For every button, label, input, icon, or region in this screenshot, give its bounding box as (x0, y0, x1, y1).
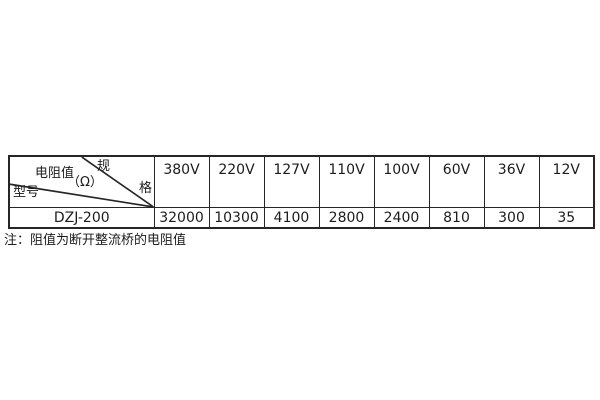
header-cell-12v: 12V (539, 156, 594, 208)
header-cell-60v: 60V (429, 156, 484, 208)
value-cell: 810 (429, 208, 484, 229)
corner-label-spec-char2: 格 (139, 182, 152, 195)
corner-label-model: 型号 (13, 186, 39, 199)
spec-table: 规 格 电阻值 （Ω） 型号 380V 220V 127V 110V 100V … (8, 155, 595, 229)
value-cell: 2800 (319, 208, 374, 229)
value-cell: 300 (484, 208, 539, 229)
header-row: 规 格 电阻值 （Ω） 型号 380V 220V 127V 110V 100V … (9, 156, 594, 208)
header-cell-127v: 127V (264, 156, 319, 208)
table-row: DZJ-200 32000 10300 4100 2800 2400 810 3… (9, 208, 594, 229)
value-cell: 10300 (209, 208, 264, 229)
corner-cell: 规 格 电阻值 （Ω） 型号 (9, 156, 154, 208)
value-cell: 32000 (154, 208, 209, 229)
value-cell: 2400 (374, 208, 429, 229)
footnote: 注：阻值为断开整流桥的电阻值 (4, 229, 186, 248)
model-cell: DZJ-200 (9, 208, 154, 229)
header-cell-220v: 220V (209, 156, 264, 208)
value-cell: 35 (539, 208, 594, 229)
header-cell-100v: 100V (374, 156, 429, 208)
page: 规 格 电阻值 （Ω） 型号 380V 220V 127V 110V 100V … (0, 0, 600, 400)
header-cell-380v: 380V (154, 156, 209, 208)
header-cell-110v: 110V (319, 156, 374, 208)
corner-label-ohm-unit: （Ω） (67, 176, 103, 189)
corner-label-spec-char1: 规 (97, 160, 110, 173)
header-cell-36v: 36V (484, 156, 539, 208)
value-cell: 4100 (264, 208, 319, 229)
